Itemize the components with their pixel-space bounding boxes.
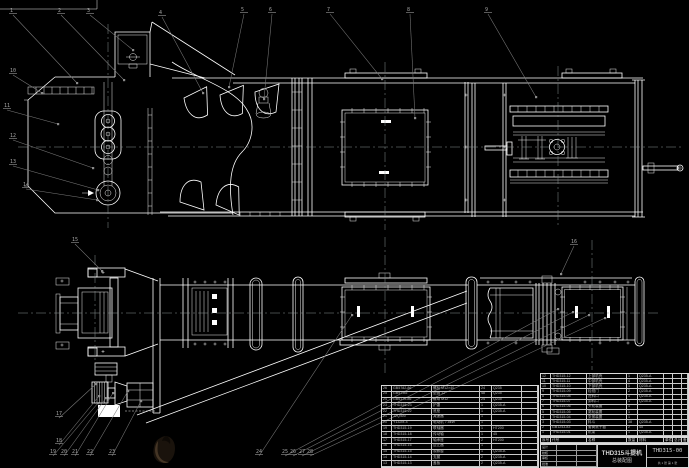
elevation-boot [465,69,684,217]
plan-drive-unit [92,363,155,417]
drawing-number: THD315-00 [647,445,688,457]
balloon-number: 23 [109,449,115,455]
leader-target [101,270,103,272]
elevation-head [24,22,235,215]
leader-target [123,79,125,81]
drawing-number-cell: THD315-00 共 1 张 第 1 张 [647,445,688,467]
leader-target [98,395,100,397]
leader-line [59,396,99,445]
watermark-logo [153,436,175,463]
leader-line [162,17,203,93]
balloon-number: 11 [4,103,10,109]
motor-base [98,405,120,417]
door-handle-slot [411,306,414,317]
sheet-frame-fragment [0,0,97,9]
elevation-view [24,22,683,221]
balloon-number: 20 [61,449,67,455]
bom-table-left: 26GB5782-86螺栓 M12×4024Q23525GB97-85垫圈 12… [381,385,539,468]
leader-target [140,400,142,402]
door-handle-slot [381,120,391,123]
balloon-number: 22 [87,449,93,455]
leader-target [535,96,537,98]
elevation-inspection-door [340,108,431,187]
leader-line [264,14,272,99]
balloon-number: 26 [290,449,296,455]
balloon-number: 7 [327,7,330,13]
leader-target [263,98,265,100]
leader-target [96,199,98,201]
leader-line [561,246,574,274]
balloon-number: 6 [269,7,272,13]
balloon-number: 10 [10,68,16,74]
direction-arrow [88,190,94,196]
bom-cell: Q235-A [492,461,522,467]
balloon-number: 12 [10,133,16,139]
balloon-number: 9 [485,7,488,13]
leader-line [259,315,352,456]
balloon-number: 21 [72,449,78,455]
bom-cell [664,431,673,436]
product-title: THD315斗提机 [602,448,642,457]
leader-target [202,92,204,94]
drawing-title: 总装配图 [612,457,632,464]
balloon-number: 15 [72,237,78,243]
leader-line [61,15,124,80]
bom-table-header: 序号代号名称数量材料单件总计备注 [540,437,689,444]
leader-target [112,392,114,394]
balloon-number: 8 [407,7,410,13]
leader-target [351,314,353,316]
bom-cell: 单件 [664,438,673,443]
leader-target [560,273,562,275]
bom-cell: 盖板 [432,461,480,467]
balloon-number: 16 [571,239,577,245]
door-handle-slot [357,306,360,317]
leader-line [90,15,133,50]
leader-target [228,86,230,88]
leader-target [604,317,606,319]
takeup-screw-assembly [485,136,578,159]
bom-cell: THD315-01 [551,431,587,436]
balloon-number: 5 [241,7,244,13]
sig-blank [557,462,577,468]
bom-cell: 13 [382,461,392,467]
leader-line [7,110,58,124]
bom-cell: 机架 [587,431,627,436]
bom-cell: THD315-13 [392,461,432,467]
leader-target [57,123,59,125]
balloon-number: 13 [10,159,16,165]
balloon-number: 4 [159,10,162,16]
bom-cell: 代号 [551,438,587,443]
balloon-number: 28 [307,449,313,455]
leader-target [127,390,129,392]
balloon-number: 17 [56,411,62,417]
leader-line [64,398,106,456]
leader-target [557,308,559,310]
bom-cell [522,461,538,467]
leader-target [76,82,78,84]
leader-line [90,391,128,456]
plan-boot [466,276,644,354]
title-cell: THD315斗提机 总装配图 [598,445,647,467]
leader-line [410,14,415,118]
bom-cell: 2 [480,461,492,467]
leader-line [59,384,96,418]
bom-cell: Q235-A [638,431,664,436]
bom-cell: 序号 [541,438,551,443]
bom-cell [682,431,688,436]
balloon-number: 25 [282,449,288,455]
bom-cell: 备注 [682,438,688,443]
leader-target [97,189,99,191]
sheet-info: 共 1 张 第 1 张 [647,457,688,467]
leader-target [105,397,107,399]
leader-line [229,14,244,87]
sig-label: 批准 [541,462,557,468]
bom-cell: 1 [541,431,551,436]
sig-blank [577,462,597,468]
elevation-buckets [172,62,312,216]
door-handle-slot [379,171,389,174]
balloon-number: 3 [87,8,90,14]
leader-target [92,167,94,169]
leader-line [13,140,93,168]
gearbox-bell [115,382,127,405]
bom-cell: 名称 [587,438,627,443]
leader-line [13,75,42,93]
leader-target [41,92,43,94]
leader-target [95,383,97,385]
leader-target [97,402,99,404]
bom-cell: 数量 [627,438,638,443]
door-handle-slot [607,306,610,318]
door-handle-slot [575,306,578,318]
title-block: 设计校核审核批准 THD315斗提机 总装配图 THD315-00 共 1 张 … [540,444,689,468]
elevation-casing [160,69,643,221]
cad-drawing-canvas: 1234567891011121314151617181920212223242… [0,0,689,468]
leader-line [488,14,536,97]
balloon-number: 27 [299,449,305,455]
balloon-number: 24 [256,449,262,455]
balloon-number: 2 [58,8,61,14]
bom-cell: 材料 [638,438,664,443]
bom-cell: 总计 [673,438,682,443]
leader-target [572,311,574,313]
signature-grid: 设计校核审核批准 [541,445,598,467]
bom-cell: 1 [627,431,638,436]
balloon-number: 1 [10,8,13,14]
leader-line [13,15,77,83]
bom-table-right: 12THD315-12上部机壳1Q235-A11THD315-11中部机壳4Q2… [540,373,689,437]
balloon-number: 14 [23,182,29,188]
leader-target [381,78,383,80]
leader-line [75,244,102,271]
leader-target [414,117,416,119]
leader-target [588,314,590,316]
bom-cell [673,431,682,436]
balloon-number: 18 [56,438,62,444]
leader-target [132,49,134,51]
balloon-number: 19 [50,449,56,455]
plan-inspection-door [340,273,432,350]
takeup-rod-right [643,163,683,173]
